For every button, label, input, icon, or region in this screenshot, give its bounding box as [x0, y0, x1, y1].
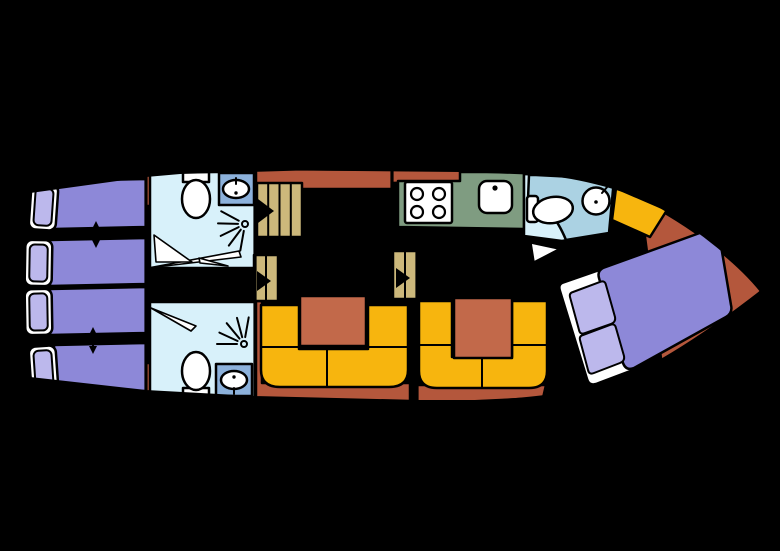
pillow: [29, 293, 48, 330]
salon-right-dinette: [419, 298, 547, 388]
toilet-icon: [182, 352, 210, 390]
pillow: [29, 244, 48, 281]
small-steps-mid: [393, 251, 417, 299]
single-bed: [50, 287, 146, 335]
table: [300, 296, 366, 346]
single-bed: [50, 238, 146, 286]
toilet-icon: [182, 180, 210, 218]
salon-left-dinette: [261, 296, 408, 387]
table: [454, 298, 512, 358]
companionway-stairs: [257, 183, 302, 237]
screenshot-canvas: [0, 0, 780, 551]
sink-drain: [492, 185, 497, 190]
pillow: [33, 188, 54, 226]
boat-floor-plan: [0, 0, 780, 551]
small-steps-left: [254, 255, 278, 301]
washbasin-icon: [221, 371, 247, 389]
galley: [398, 172, 524, 229]
